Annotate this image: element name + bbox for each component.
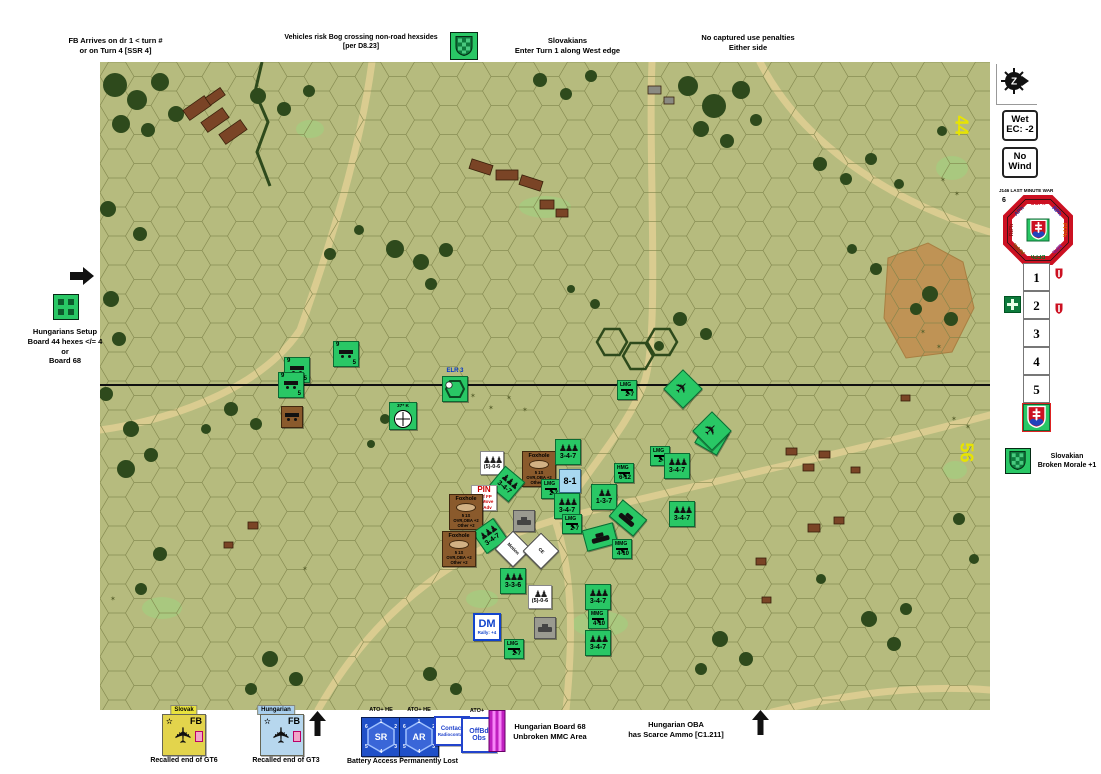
captured-note: No captured use penalties Either side [688,33,808,53]
soldier-figures-icon: ♟♟♟ [558,498,576,506]
squad-counter[interactable]: ♟♟♟3-4-7 [585,584,611,610]
phase-label-pfph: PFPh [1061,223,1067,238]
gun-sight-icon [394,410,412,428]
soldier-figures-icon: ♟♟♟ [559,444,577,452]
wagon-icon [284,381,298,389]
slovakian-entry-counter[interactable] [450,32,478,60]
foxhole-counter[interactable]: Foxhole5 1SOVR,OBA +2Other +2 [449,494,483,530]
foxhole-counter[interactable]: Foxhole5 1SOVR,OBA +2Other +2 [442,531,476,567]
hex-number: 2 [394,724,397,730]
bog-line2: [per D8.23] [275,42,447,51]
soldier-figures-icon: ♟♟♟ [589,635,607,643]
brown-counter[interactable] [281,406,303,428]
wreck-icon [538,624,552,632]
svg-text:✶: ✶ [488,404,494,412]
wind-line2: Wind [1004,162,1036,172]
svg-text:✶: ✶ [940,176,946,184]
svg-text:✶: ✶ [954,190,960,198]
morale-line1: Slovakian [1034,452,1100,461]
hex-number: 6 [403,724,406,730]
hex-number: 6 [365,724,368,730]
oba-line1: Hungarian OBA [610,720,742,730]
weather-line2: EC: -2 [1004,125,1036,135]
board68-line1: Hungarian Board 68 [490,722,610,732]
broken-morale-note: Slovakian Broken Morale +1 [1034,452,1100,470]
captured-line1: No captured use penalties [688,33,808,43]
squad-counter[interactable]: ♟♟♟3-4-7 [664,453,690,479]
phase-label-rtph: RtPh [1009,223,1015,236]
squad-counter[interactable]: ♟♟♟3-4-7 [585,630,611,656]
hex-number: 5 [365,744,368,750]
bog-note: Vehicles risk Bog crossing non-road hexs… [275,33,447,51]
wagon-counter[interactable]: 95 [333,341,359,367]
offbd-ammo-label: ATO+ [470,708,484,714]
hex-number: 5 [403,744,406,750]
squad-counter[interactable]: ♟♟1-3-7 [591,484,617,510]
sr-ammo-label: ATO+ HE [369,707,392,713]
svg-text:Z: Z [1011,77,1017,88]
captured-line2: Either side [688,43,808,53]
soldier-figures-icon: ♟♟♟ [589,589,607,597]
phase-label-ccph: CCPh [1031,201,1047,207]
fb-label: FB [288,716,300,726]
slovak-shield-icon [1031,220,1046,239]
leader-counter[interactable]: 8-1 [559,469,581,493]
sw-counter[interactable]: LMG2-7 [504,639,524,659]
slovak-turn-marker[interactable] [1023,404,1050,431]
slovak-entry-note: Slovakians Enter Turn 1 along West edge [500,36,635,56]
star-icon: ✫ [264,717,271,726]
svg-text:✶: ✶ [936,343,942,351]
soldier-figures-icon: ♟♟♟ [483,456,501,464]
scenario-title: J146 LAST MINUTE WAR [999,188,1053,193]
hex-number: 1 [380,719,383,725]
svg-text:✶: ✶ [522,406,528,414]
up-arrow-marker-right[interactable] [752,710,769,735]
ar-counter[interactable]: 1 2 3 4 5 6 AR [399,717,439,757]
hex-number: 4 [418,749,421,755]
oba-line2: has Scarce Ammo [C1.211] [610,730,742,740]
soldier-figures-icon: ♟♟♟ [504,573,522,581]
svg-text:✶: ✶ [506,394,512,402]
sw-counter[interactable]: LMG2-7 [562,514,582,534]
hungarian-fb-counter[interactable]: ✫ FB ✈ [260,714,304,756]
foxhole-icon [529,460,549,469]
fb-arrives-note: FB Arrives on dr 1 < turn # or on Turn 4… [18,36,213,56]
squad-counter[interactable]: ♟♟♟3-3-6 [500,568,526,594]
battery-lost-note: Battery Access Permanently Lost [330,757,475,766]
wind-chit[interactable]: No Wind [1002,147,1038,178]
recall-badge [293,731,301,742]
offbd-line1: OffBd [469,728,488,735]
fb-label: FB [190,716,202,726]
setup-line2: Board 44 hexes </= 4 [0,337,130,347]
wreck-icon [517,517,531,525]
hex-number: 1 [418,719,421,725]
elr-counter[interactable]: ELR 3 [442,376,468,402]
sr-label: SR [375,732,388,742]
hungarian-setup-counter[interactable] [53,294,79,320]
squad-counter[interactable]: ♟♟♟3-4-7 [669,501,695,527]
soldier-figures-icon: ♟♟ [598,489,610,497]
svg-text:✶: ✶ [920,328,926,336]
gray-counter[interactable] [534,617,556,639]
phase-dial[interactable]: CCPhRPhPFPhMPhDFPhAFPhRtPhAPh [1003,195,1073,265]
slovak-entry-line2: Enter Turn 1 along West edge [500,46,635,56]
hungarian-loss-shield-1[interactable] [1054,267,1065,281]
sw-counter[interactable]: LMG2-7 [617,380,637,400]
morale-line2: Broken Morale +1 [1034,461,1100,470]
crewW-counter[interactable]: ♟♟(5)-0-6 [528,585,552,609]
svg-text:✶: ✶ [470,392,476,400]
turn-track-cell-2[interactable]: 2 [1023,291,1050,319]
setup-line3: or [0,347,130,357]
slovak-fb-counter[interactable]: ✫ FB ✈ [162,714,206,756]
turn-dial-button[interactable]: Z [996,64,1037,105]
hungarian-loss-shield-2[interactable] [1054,302,1065,316]
svg-text:✶: ✶ [965,423,971,431]
plane-icon: ✈ [174,726,194,744]
phase-label-dfph: DFPh [1030,253,1045,259]
ar-label: AR [413,732,426,742]
svg-text:✶: ✶ [302,565,308,573]
sw-counter[interactable]: MMG4-10 [612,539,632,559]
squad-counter[interactable]: ♟♟♟3-4-7 [555,439,581,465]
plane-icon: ✈ [673,379,694,400]
dm-counter[interactable]: DMRally: +4 [473,613,501,641]
turn-track-cell-3[interactable]: 3 [1023,319,1050,347]
hex-map[interactable]: ✶✶✶ ✶✶✶ ✶✶✶ ✶✶✶ [0,0,1101,774]
hungarian-setup-note: Hungarians Setup Board 44 hexes </= 4 or… [0,327,130,366]
weather-chit[interactable]: Wet EC: -2 [1002,110,1038,141]
plane-icon: ✈ [702,421,723,442]
soldier-figures-icon: ♟♟♟ [668,458,686,466]
board-number-56: 56 [956,442,977,462]
fb-arrives-line1: FB Arrives on dr 1 < turn # [18,36,213,46]
offbd-line2: Obs [472,735,486,742]
up-arrow-marker-left[interactable] [309,711,326,736]
setup-line4: Board 68 [0,356,130,366]
svg-text:✶: ✶ [110,595,116,603]
wagon-counter[interactable]: 95 [278,372,304,398]
wagon-icon [339,350,353,358]
hex-number: 4 [380,749,383,755]
board-number-44: 44 [951,115,972,135]
star-icon: ✫ [166,717,173,726]
setup-line1: Hungarians Setup [0,327,130,337]
reinforcement-cross-counter[interactable] [1004,296,1021,313]
turn-track-cell-5[interactable]: 5 [1023,375,1050,403]
slovak-morale-counter[interactable] [1005,448,1031,474]
soldier-figures-icon: ♟♟ [534,590,546,598]
slovak-entry-line1: Slovakians [500,36,635,46]
bog-line1: Vehicles risk Bog crossing non-road hexs… [275,33,447,42]
wagon-icon [285,413,299,421]
vassal-game-window: ✶✶✶ ✶✶✶ ✶✶✶ ✶✶✶ [0,0,1101,774]
ar-ammo-label: ATO+ HE [407,707,430,713]
gun-counter[interactable]: 37* K [389,402,417,430]
zoom-compass-icon: Z [999,66,1029,96]
right-arrow-marker[interactable] [70,267,94,285]
oba-note: Hungarian OBA has Scarce Ammo [C1.211] [610,720,742,740]
map-board[interactable]: ✶✶✶ ✶✶✶ ✶✶✶ ✶✶✶ [75,33,1053,773]
sw-counter[interactable]: MMG4-10 [588,609,608,629]
soldier-figures-icon: ♟♟♟ [673,506,691,514]
plane-icon: ✈ [272,726,292,744]
tank-icon [590,530,610,543]
fb-arrives-line2: or on Turn 4 [SSR 4] [18,46,213,56]
hex-number: 3 [394,744,397,750]
svg-text:✶: ✶ [951,415,957,423]
board68-note: Hungarian Board 68 Unbroken MMC Area [490,722,610,742]
turn-track-cell-1[interactable]: 1 [1023,263,1050,291]
tank-icon [618,509,638,527]
gray-counter[interactable] [513,510,535,532]
sw-counter[interactable]: HMG6-12 [614,463,634,483]
board68-line2: Unbroken MMC Area [490,732,610,742]
foxhole-icon [456,503,476,512]
sr-counter[interactable]: 1 2 3 4 5 6 SR [361,717,401,757]
recall-badge [195,731,203,742]
hexagon-icon [445,380,465,398]
foxhole-icon [449,540,469,549]
turn-track-cell-4[interactable]: 4 [1023,347,1050,375]
